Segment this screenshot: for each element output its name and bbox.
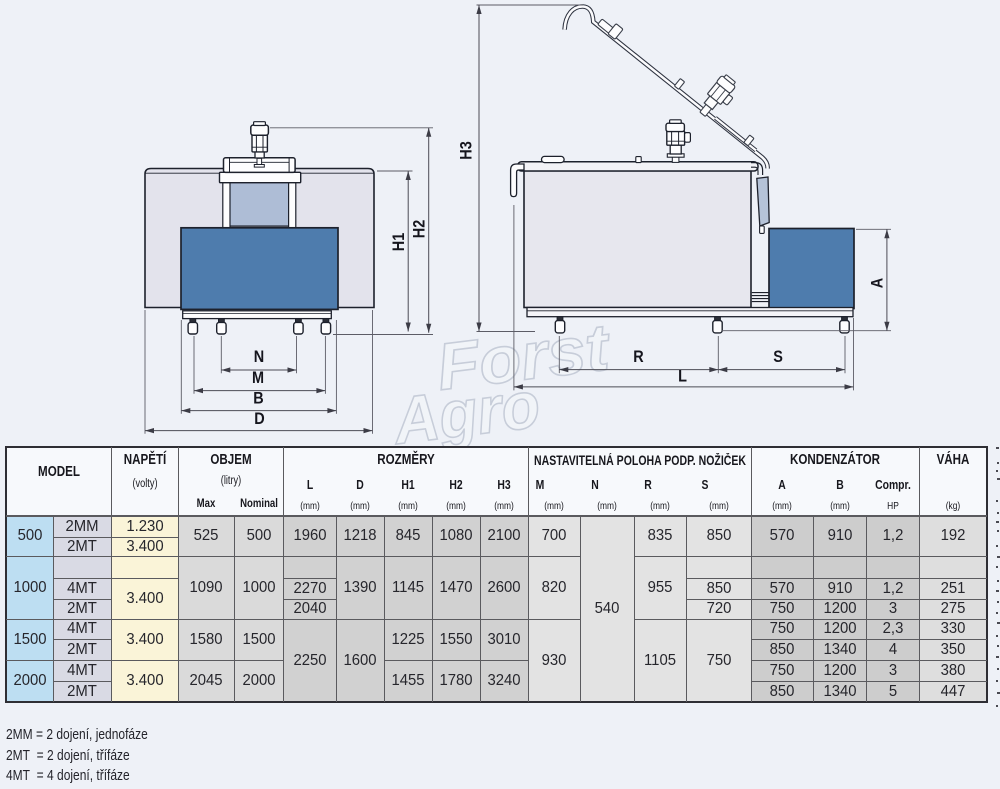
svg-text:L: L: [678, 368, 687, 386]
svg-text:H2: H2: [410, 220, 428, 239]
svg-text:M: M: [252, 369, 264, 387]
svg-text:A: A: [869, 278, 887, 288]
svg-text:H3: H3: [457, 141, 475, 160]
svg-text:N: N: [254, 348, 264, 366]
svg-text:S: S: [773, 348, 783, 366]
svg-text:H1: H1: [390, 233, 408, 252]
svg-text:Agro: Agro: [388, 367, 544, 447]
svg-text:R: R: [633, 348, 644, 366]
svg-text:D: D: [254, 410, 264, 428]
svg-text:B: B: [253, 390, 263, 408]
